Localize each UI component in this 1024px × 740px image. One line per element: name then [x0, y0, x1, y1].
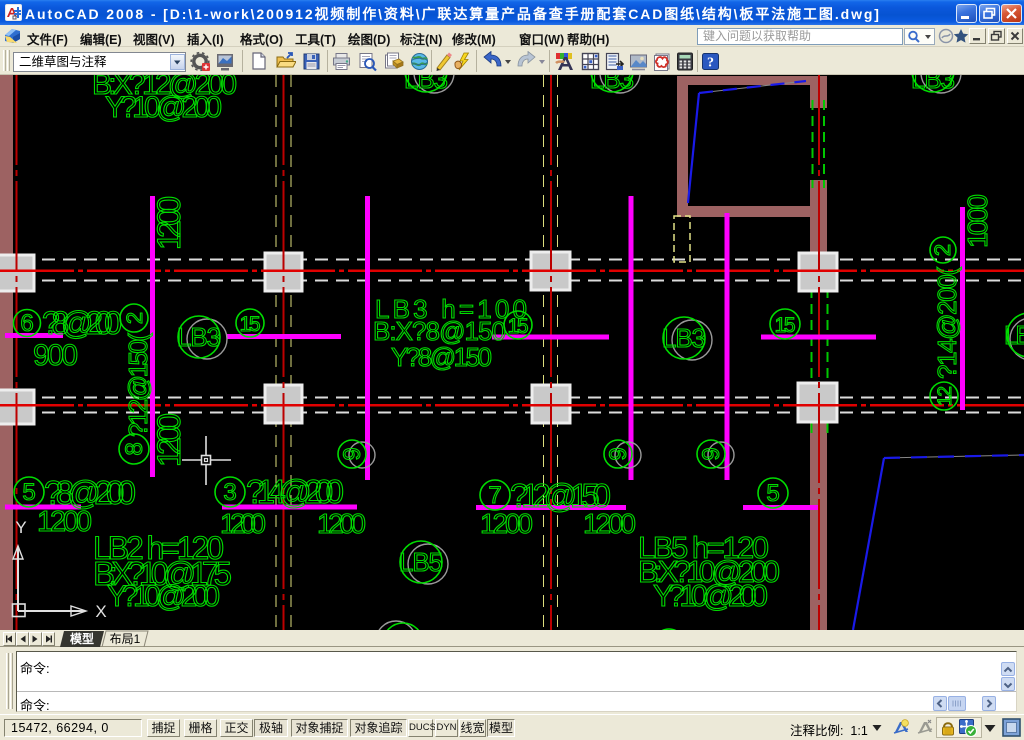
svg-text:Y?10@200: Y?10@200	[653, 578, 768, 613]
svg-text:X: X	[95, 602, 106, 621]
svg-text:9: 9	[339, 447, 366, 460]
svg-text:?12@150(: ?12@150(	[123, 333, 153, 437]
svg-text:9: 9	[605, 447, 632, 460]
svg-text:Y: Y	[15, 518, 26, 537]
svg-text:Y?8@150: Y?8@150	[391, 342, 492, 372]
svg-text:9: 9	[698, 447, 725, 460]
svg-text:?14@200(: ?14@200(	[932, 267, 962, 379]
svg-text:1200: 1200	[37, 506, 92, 538]
svg-text:1200: 1200	[220, 508, 266, 539]
svg-text:LB3: LB3	[1004, 320, 1024, 350]
svg-text:LB3: LB3	[177, 322, 221, 352]
svg-text:15: 15	[508, 315, 529, 338]
svg-text:7: 7	[488, 482, 501, 509]
svg-text:LB5: LB5	[399, 547, 443, 577]
svg-text:2: 2	[122, 312, 147, 324]
svg-text:1200: 1200	[583, 508, 636, 539]
svg-text:15: 15	[775, 314, 796, 337]
svg-text:布局1: 布局1	[110, 632, 141, 646]
svg-text:1200: 1200	[480, 508, 533, 539]
svg-text:Y?10@200: Y?10@200	[105, 91, 222, 124]
svg-text:900: 900	[33, 339, 78, 372]
svg-text:3: 3	[223, 479, 236, 506]
svg-text:1200: 1200	[317, 508, 366, 539]
svg-text:LB3: LB3	[590, 75, 634, 94]
svg-text:?: ?	[707, 56, 714, 71]
svg-text:15: 15	[240, 313, 261, 336]
svg-text:?14@200: ?14@200	[246, 473, 344, 510]
svg-text:LB3: LB3	[911, 75, 955, 94]
svg-text:1000: 1000	[962, 194, 993, 248]
svg-text:模型: 模型	[70, 631, 94, 646]
svg-text:6: 6	[20, 310, 33, 337]
svg-text:2: 2	[930, 244, 955, 256]
svg-text:LB3: LB3	[404, 75, 448, 94]
svg-text:8: 8	[121, 442, 148, 455]
svg-text:1200: 1200	[151, 196, 187, 250]
svg-text:12: 12	[935, 386, 956, 406]
svg-text:5: 5	[22, 479, 35, 506]
svg-text:LB3: LB3	[662, 323, 706, 353]
svg-text:1200: 1200	[151, 413, 187, 467]
svg-text:Y?10@200: Y?10@200	[107, 580, 220, 613]
svg-text:5: 5	[766, 480, 779, 507]
svg-text:?8@200: ?8@200	[42, 305, 122, 341]
